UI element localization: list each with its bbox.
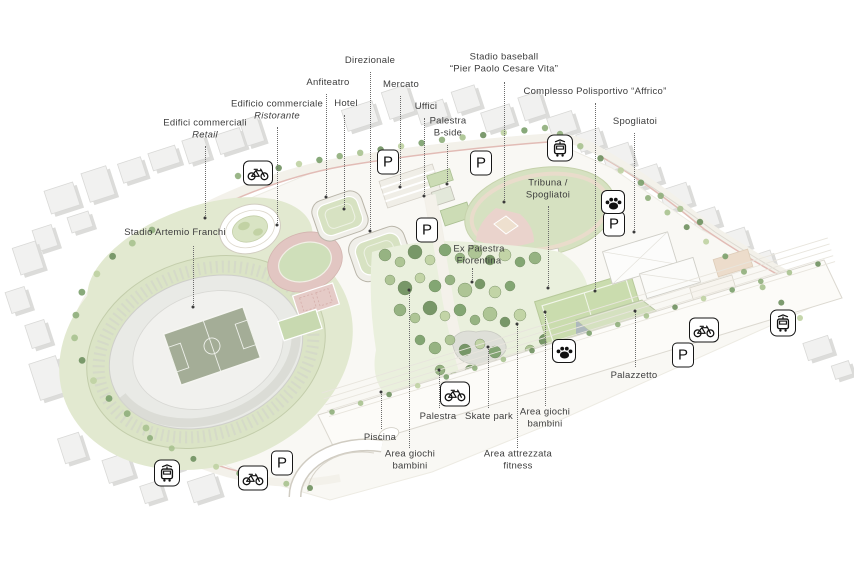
parking-letter: P [476,154,486,171]
leader-line-edifici-commerciali-retail [205,146,206,218]
roadside-tree [398,143,404,149]
roadside-tree [296,161,302,167]
callout-line: “Pier Paolo Cesare Vita” [450,64,558,76]
context-building [187,472,225,506]
leader-line-uffici [424,118,425,196]
parking-icon: P [271,451,293,476]
leader-dot-stadio-baseball [503,201,506,204]
callout-line: Mercato [383,79,419,91]
leader-dot-palazzetto [634,310,637,313]
callout-anfiteatro: Anfiteatro [306,77,349,89]
leader-line-direzionale [370,72,371,231]
context-building [25,319,56,353]
park-tree [489,286,501,298]
masterplan-canvas: Edifici commercialiRetailEdificio commer… [0,0,854,570]
context-building [58,431,91,467]
callout-line: Anfiteatro [306,77,349,89]
callout-line: Palestra [430,116,467,128]
callout-direzionale: Direzionale [345,55,395,67]
callout-line: Skate park [465,411,513,423]
park-tree [505,281,515,291]
leader-line-tribuna-spogliatoi [548,206,549,288]
context-building [481,103,520,136]
leader-dot-palestra [438,369,441,372]
roadside-tree [109,253,116,260]
roadside-tree [797,315,803,321]
leader-dot-edificio-commerciale-ristorante [276,224,279,227]
roadside-tree [542,125,548,131]
parking-letter: P [678,346,688,363]
context-building [117,156,150,187]
roadside-tree [758,279,764,285]
park-tree [379,249,391,261]
callout-line: Area giochi [520,407,570,419]
callout-line: Fiorentina [453,256,504,268]
roadside-tree [615,322,621,328]
callout-palazzetto: Palazzetto [611,370,658,382]
roadside-tree [760,284,766,290]
park-tree [529,252,541,264]
context-building [67,210,97,237]
roadside-tree [658,193,664,199]
roadside-tree [664,210,670,216]
callout-line: Stadio baseball [450,52,558,64]
leader-dot-anfiteatro [325,196,328,199]
callout-line: Palestra [420,411,457,423]
tram-icon [770,310,796,337]
roadside-tree [124,410,131,417]
callout-tribuna-spogliatoi: Tribuna /Spogliatoi [526,178,570,203]
roadside-tree [283,481,289,487]
paw-icon [601,190,625,214]
roadside-tree [73,312,80,319]
leader-line-area-attrezzata-fitness [517,324,518,448]
roadside-tree [703,239,709,245]
roadside-tree [169,445,175,451]
roadside-tree [644,313,650,319]
park-tree [445,335,455,345]
leader-line-mercato [400,96,401,187]
parking-icon: P [416,218,438,243]
bike-icon [238,466,268,491]
callout-area-attrezzata-fitness: Area attrezzatafitness [484,449,552,474]
callout-line: bambini [385,461,435,473]
parking-letter: P [422,221,432,238]
callout-uffici: Uffici [415,101,437,113]
leader-dot-skate-park [487,346,490,349]
park-tree [423,301,437,315]
park-tree [515,257,525,267]
callout-line: Ristorante [231,111,323,123]
tram-icon [154,460,180,487]
callout-piscina: Piscina [364,432,396,444]
leader-line-anfiteatro [326,94,327,197]
roadside-tree [71,335,78,342]
site-illustration [0,0,854,570]
callout-line: Spogliatoi [613,116,657,128]
park-tree [483,307,497,321]
context-building [803,334,837,364]
leader-line-edificio-commerciale-ristorante [277,127,278,225]
leader-line-stadio-baseball [504,82,505,202]
parking-icon: P [377,150,399,175]
leader-dot-mercato [399,186,402,189]
callout-line: Tribuna / [526,178,570,190]
roadside-tree [638,180,644,186]
leader-line-stadio-artemio-franchi [193,246,194,307]
roadside-tree [741,269,747,275]
leader-dot-ex-palestra-fiorentina [471,281,474,284]
roadside-tree [480,132,486,138]
roadside-tree [337,153,343,159]
park-tree [429,342,441,354]
parking-letter: P [609,215,619,232]
parking-letter: P [383,153,393,170]
roadside-tree [645,195,651,201]
roadside-tree [415,383,421,389]
callout-hotel: Hotel [334,98,357,110]
callout-line: B-side [430,128,467,140]
leader-line-hotel [344,115,345,209]
leader-dot-area-attrezzata-fitness [516,323,519,326]
roadside-tree [90,377,97,384]
park-tree [440,311,450,321]
park-tree [429,280,441,292]
park-tree [475,279,485,289]
roadside-tree [677,206,683,212]
leader-dot-spogliatoi [633,231,636,234]
roadside-tree [307,485,313,491]
roadside-tree [143,425,150,432]
callout-line: Area attrezzata [484,449,552,461]
roadside-tree [106,395,113,402]
context-building [81,165,119,206]
roadside-tree [722,253,728,259]
roadside-tree [521,127,527,133]
roadside-tree [684,224,690,230]
park-tree [394,304,406,316]
park-tree [410,313,420,323]
roadside-tree [787,270,793,276]
leader-dot-complesso-polisportivo-affrico [594,290,597,293]
paw-icon [552,339,576,363]
leader-dot-direzionale [369,230,372,233]
park-tree [500,317,510,327]
park-tree [385,275,395,285]
tram-icon [547,135,573,162]
roadside-tree [529,348,535,354]
bike-icon [440,382,470,407]
roadside-tree [577,143,583,149]
leader-line-palazzetto [635,311,636,367]
leader-line-area-giochi-bambini-e [545,312,546,406]
park-tree [470,315,480,325]
park-tree [425,255,435,265]
roadside-tree [235,173,241,179]
park-tree [454,304,466,316]
roadside-tree [444,374,450,380]
callout-complesso-polisportivo-affrico: Complesso Polisportivo “Affrico” [524,86,667,98]
callout-line: Complesso Polisportivo “Affrico” [524,86,667,98]
roadside-tree [501,357,507,363]
roadside-tree [79,289,86,296]
callout-mercato: Mercato [383,79,419,91]
callout-palestra-b-side: PalestraB-side [430,116,467,141]
leader-dot-stadio-artemio-franchi [192,306,195,309]
callout-line: Spogliatoi [526,190,570,202]
park-tree [408,245,422,259]
parking-icon: P [470,151,492,176]
roadside-tree [697,219,703,225]
callout-line: Ex Palestra [453,244,504,256]
context-building [451,84,485,117]
leader-dot-area-giochi-bambini-sw [408,289,411,292]
leader-dot-area-giochi-bambini-e [544,311,547,314]
callout-area-giochi-bambini-e: Area giochibambini [520,407,570,432]
parking-icon: P [603,212,625,237]
roadside-tree [597,155,603,161]
roadside-tree [190,456,196,462]
roadside-tree [79,357,86,364]
roadside-tree [329,409,335,415]
roadside-tree [316,157,322,163]
roadside-tree [586,330,592,336]
context-building [831,360,854,384]
callout-line: bambini [520,419,570,431]
roadside-tree [357,150,363,156]
roadside-tree [358,400,364,406]
park-tree [395,257,405,267]
roadside-tree [147,435,153,441]
leader-line-palestra-b-side [447,145,448,184]
callout-edificio-commerciale-ristorante: Edificio commercialeRistorante [231,99,323,124]
park-tree [445,275,455,285]
callout-skate-park: Skate park [465,411,513,423]
callout-line: Area giochi [385,449,435,461]
context-building [5,286,35,318]
roadside-tree [94,271,101,278]
callout-stadio-artemio-franchi: Stadio Artemio Franchi [124,227,226,239]
park-tree [415,335,425,345]
bike-icon [243,161,273,186]
callout-line: Uffici [415,101,437,113]
roadside-tree [701,296,707,302]
roadside-tree [129,240,136,247]
leader-dot-uffici [423,195,426,198]
callout-line: Piscina [364,432,396,444]
roadside-tree [672,304,678,310]
leader-dot-hotel [343,208,346,211]
callout-line: Direzionale [345,55,395,67]
callout-spogliatoi: Spogliatoi [613,116,657,128]
park-tree [458,283,472,297]
context-building [44,181,84,218]
callout-line: fitness [484,461,552,473]
leader-dot-palestra-b-side [446,183,449,186]
roadside-tree [213,464,219,470]
callout-line: Palazzetto [611,370,658,382]
roadside-tree [618,167,624,173]
callout-area-giochi-bambini-sw: Area giochibambini [385,449,435,474]
leader-line-area-giochi-bambini-sw [409,290,410,448]
leader-dot-piscina [380,391,383,394]
leader-line-spogliatoi [634,133,635,232]
roadside-tree [729,287,735,293]
leader-dot-edifici-commerciali-retail [204,217,207,220]
leader-dot-tribuna-spogliatoi [547,287,550,290]
leader-line-piscina [381,392,382,429]
roadside-tree [472,365,478,371]
park-tree [514,309,526,321]
callout-line: Stadio Artemio Franchi [124,227,226,239]
bike-icon [689,318,719,343]
callout-palestra: Palestra [420,411,457,423]
park-tree [439,244,451,256]
callout-ex-palestra-fiorentina: Ex PalestraFiorentina [453,244,504,269]
leader-line-complesso-polisportivo-affrico [595,103,596,291]
park-tree [415,273,425,283]
callout-line: Retail [163,130,246,142]
roadside-tree [386,392,392,398]
callout-line: Hotel [334,98,357,110]
leader-line-skate-park [488,347,489,408]
parking-icon: P [672,343,694,368]
context-building [148,144,184,175]
parking-letter: P [277,454,287,471]
roadside-tree [815,261,821,267]
callout-line: Edificio commerciale [231,99,323,111]
callout-stadio-baseball: Stadio baseball“Pier Paolo Cesare Vita” [450,52,558,77]
roadside-tree [778,300,784,306]
